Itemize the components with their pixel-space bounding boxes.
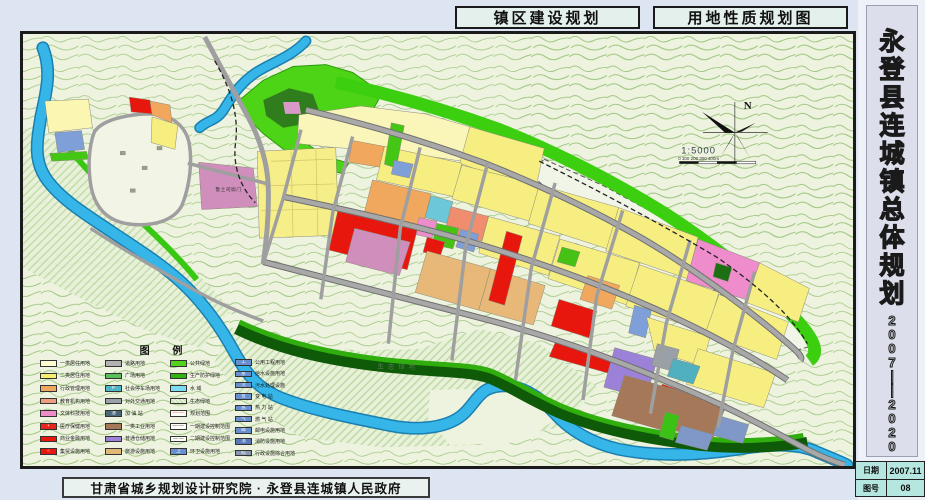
sheet-title-char: 永	[879, 28, 904, 56]
legend-label: 变 电 站	[255, 393, 273, 400]
legend-item: ☆集贸设施用地	[40, 445, 105, 458]
tab-left-label: 镇区建设规划	[493, 7, 601, 28]
legend-label: 规划范围	[190, 410, 210, 417]
legend-label: 邮电设施用地	[255, 427, 285, 434]
legend-item: 综行政设施综合用地	[235, 447, 300, 458]
legend-swatch-icon	[40, 398, 57, 405]
legend-item: 旅游设施用地	[105, 445, 170, 458]
map-label-eco-green: 生态绿地	[377, 361, 419, 370]
legend-label: 行政设施综合用地	[255, 450, 295, 457]
legend-swatch-icon	[105, 360, 122, 367]
legend-swatch-icon: 变	[235, 393, 252, 400]
legend-item: 消消防设施用地	[235, 436, 300, 447]
legend-swatch-icon	[40, 373, 57, 380]
legend-item: 热热 力 站	[235, 402, 300, 413]
plan-year-char: 0	[888, 328, 895, 342]
legend-item: 二类居住用地	[40, 370, 105, 383]
legend-column: 一类居住用地二类居住用地行政管理用地教育机构用地文体科技用地+医疗保健用地商业金…	[40, 357, 105, 459]
legend-label: 热 力 站	[255, 404, 273, 411]
sheet-info-table: 日期2007.11图号08	[855, 461, 925, 497]
map-canvas: N 1:5000 0 100 200 300 400m 鲁土司衙门 生态绿地 图…	[20, 31, 856, 469]
plan-years-vertical: 2007——2020	[886, 314, 899, 454]
legend-item: 公共绿地	[170, 357, 235, 370]
legend-label: 二期建设控制范围	[190, 435, 230, 442]
legend-item: 广场用地	[105, 370, 170, 383]
legend-column: 公共绿地生产防护绿地水 域生态绿地—·—·规划范围—·—·一期建设控制范围— —…	[170, 357, 235, 459]
legend-label: 公共绿地	[190, 360, 210, 367]
legend-swatch-icon: 气	[235, 416, 252, 423]
legend-swatch-icon	[40, 436, 57, 443]
scale-bar-labels: 0 100 200 300 400m	[678, 156, 719, 161]
plan-year-char: 0	[888, 342, 895, 356]
sheet-title-box: 永登县连城镇总体规划 2007——2020	[866, 5, 918, 457]
credit-text: 甘肃省城乡规划设计研究院 · 永登县连城镇人民政府	[90, 478, 401, 497]
legend-swatch-icon	[170, 398, 187, 405]
sheet-title-char: 规	[879, 252, 904, 280]
legend-swatch-icon: 综	[235, 450, 252, 457]
legend-item: — —二期建设控制范围	[170, 433, 235, 446]
legend-item: 生态绿地	[170, 395, 235, 408]
plan-year-char: 2	[888, 314, 895, 328]
legend-label: 一类居住用地	[60, 360, 90, 367]
legend-swatch-icon: 消	[235, 438, 252, 445]
legend-label: 行政管理用地	[60, 385, 90, 392]
legend-swatch-icon: P	[105, 385, 122, 392]
sheet-title-char: 城	[879, 140, 904, 168]
legend-item: 卫环卫设施用地	[170, 445, 235, 458]
sheet-title-vertical: 永登县连城镇总体规划	[879, 28, 904, 308]
legend-label: 环卫设施用地	[190, 448, 220, 455]
info-value: 08	[887, 480, 924, 496]
legend-item: 商业金融用地	[40, 433, 105, 446]
plan-year-char: 0	[888, 412, 895, 426]
legend-swatch-icon: 工	[235, 359, 252, 366]
sheet-title-char: 体	[879, 224, 904, 252]
legend-label: 给水设施用地	[255, 370, 285, 377]
legend-swatch-icon: 水	[235, 371, 252, 378]
legend-swatch-icon	[40, 410, 57, 417]
legend-swatch-icon: 污	[235, 382, 252, 389]
legend-label: 公用工程用地	[255, 359, 285, 366]
sheet-title-char: 划	[879, 280, 904, 308]
legend-swatch-icon	[105, 423, 122, 430]
plan-year-char: 0	[888, 440, 895, 454]
map-label-heritage: 鲁土司衙门	[215, 186, 241, 193]
legend-label: 水 域	[190, 385, 201, 392]
legend-item: 道路用地	[105, 357, 170, 370]
legend-swatch-icon	[105, 436, 122, 443]
legend-column: 工公用工程用地水给水设施用地污污水处理设施变变 电 站热热 力 站气燃 气 站邮…	[235, 357, 300, 459]
legend-label: 污水处理设施	[255, 382, 285, 389]
legend-columns: 一类居住用地二类居住用地行政管理用地教育机构用地文体科技用地+医疗保健用地商业金…	[40, 357, 300, 459]
info-value: 2007.11	[887, 462, 924, 479]
scale-text: 1:5000	[681, 144, 716, 155]
info-row: 日期2007.11	[856, 462, 924, 479]
plan-year-char: 2	[888, 398, 895, 412]
legend-label: 加 油 站	[125, 410, 143, 417]
legend-swatch-icon	[105, 373, 122, 380]
legend-label: 文体科技用地	[60, 410, 90, 417]
right-sidebar: 永登县连城镇总体规划 2007——2020	[858, 0, 925, 500]
legend-swatch-icon: —·—·	[170, 410, 187, 417]
legend-item: 普通仓储用地	[105, 433, 170, 446]
legend-item: 文体科技用地	[40, 407, 105, 420]
legend-item: 油加 油 站	[105, 407, 170, 420]
plan-year-char: 7	[888, 356, 895, 370]
title-tab-construction-plan: 镇区建设规划	[455, 6, 640, 29]
legend-label: 对外交通用地	[125, 398, 155, 405]
legend-item: 行政管理用地	[40, 382, 105, 395]
legend-swatch-icon	[40, 385, 57, 392]
legend-swatch-icon: 油	[105, 410, 122, 417]
title-tab-landuse-map: 用地性质规划图	[653, 6, 848, 29]
legend-column: 道路用地广场用地P社会停车场用地对外交通用地油加 油 站一类工业用地普通仓储用地…	[105, 357, 170, 459]
legend-item: 水给水设施用地	[235, 368, 300, 379]
info-row: 图号08	[856, 479, 924, 496]
legend-swatch-icon: 热	[235, 405, 252, 412]
sheet-title-char: 镇	[879, 168, 904, 196]
legend-swatch-icon: — —	[170, 436, 187, 443]
plan-year-char: —	[885, 371, 899, 384]
legend-swatch-icon	[105, 448, 122, 455]
legend-label: 一期建设控制范围	[190, 423, 230, 430]
legend-label: 广场用地	[125, 372, 145, 379]
north-label: N	[744, 100, 752, 112]
legend-swatch-icon	[105, 398, 122, 405]
legend-swatch-icon	[170, 373, 187, 380]
legend-swatch-icon: 卫	[170, 448, 187, 455]
legend-item: 变变 电 站	[235, 391, 300, 402]
legend-item: 一类工业用地	[105, 420, 170, 433]
legend-item: 教育机构用地	[40, 395, 105, 408]
legend-label: 旅游设施用地	[125, 448, 155, 455]
info-label: 日期	[856, 462, 887, 479]
legend-item: 工公用工程用地	[235, 357, 300, 368]
legend-label: 一类工业用地	[125, 423, 155, 430]
credit-bar: 甘肃省城乡规划设计研究院 · 永登县连城镇人民政府	[62, 477, 430, 498]
legend-label: 燃 气 站	[255, 416, 273, 423]
legend-label: 二类居住用地	[60, 372, 90, 379]
legend-swatch-icon: —·—·	[170, 423, 187, 430]
legend-swatch-icon: ☆	[40, 448, 57, 455]
legend-item: —·—·一期建设控制范围	[170, 420, 235, 433]
legend-title: 图 例	[106, 342, 226, 357]
planning-sheet: { "header": { "tab_left": "镇区建设规划", "tab…	[0, 0, 925, 500]
legend-label: 医疗保健用地	[60, 423, 90, 430]
legend-item: 污污水处理设施	[235, 380, 300, 391]
legend-item: +医疗保健用地	[40, 420, 105, 433]
plan-year-char: 2	[888, 426, 895, 440]
legend-label: 道路用地	[125, 360, 145, 367]
sheet-title-char: 县	[879, 84, 904, 112]
legend-item: —·—·规划范围	[170, 407, 235, 420]
tab-right-label: 用地性质规划图	[687, 7, 813, 28]
legend-label: 生产防护绿地	[190, 372, 220, 379]
plan-year-char: —	[885, 385, 899, 398]
sheet-title-char: 登	[879, 56, 904, 84]
legend-item: 生产防护绿地	[170, 370, 235, 383]
info-label: 图号	[856, 480, 887, 496]
legend-item: 气燃 气 站	[235, 413, 300, 424]
legend-label: 教育机构用地	[60, 398, 90, 405]
legend-item: P社会停车场用地	[105, 382, 170, 395]
sheet-title-char: 连	[879, 112, 904, 140]
legend-label: 消防设施用地	[255, 438, 285, 445]
legend-label: 集贸设施用地	[60, 448, 90, 455]
legend-swatch-icon: 邮	[235, 427, 252, 434]
legend-item: 对外交通用地	[105, 395, 170, 408]
legend-swatch-icon: +	[40, 423, 57, 430]
legend-swatch-icon	[170, 385, 187, 392]
legend-item: 邮邮电设施用地	[235, 425, 300, 436]
legend-swatch-icon	[170, 360, 187, 367]
legend-item: 水 域	[170, 382, 235, 395]
legend-label: 商业金融用地	[60, 435, 90, 442]
legend-swatch-icon	[40, 360, 57, 367]
sheet-title-char: 总	[879, 196, 904, 224]
legend-item: 一类居住用地	[40, 357, 105, 370]
legend-label: 生态绿地	[190, 398, 210, 405]
legend-label: 社会停车场用地	[125, 385, 160, 392]
legend-label: 普通仓储用地	[125, 435, 155, 442]
